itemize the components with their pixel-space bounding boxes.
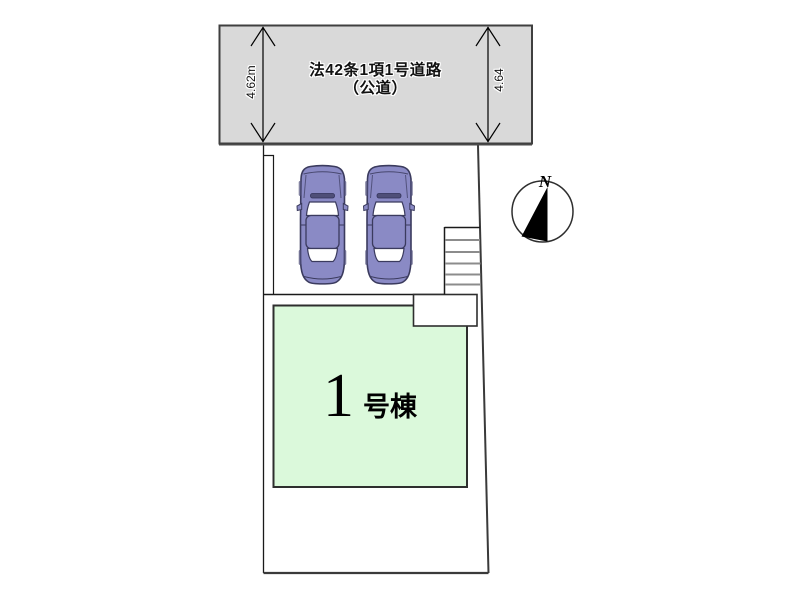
road-width-dimension-right: 4.64 (492, 60, 506, 100)
site-plan: 法42条1項1号道路 （公道） 4.62m 4.64 1 号棟 N (0, 0, 800, 600)
building-number-suffix: 号棟 (363, 385, 417, 424)
compass-north-label: N (535, 172, 555, 192)
car-icon (364, 166, 415, 284)
road-width-dimension-left: 4.62m (244, 54, 258, 110)
setback-step-line (264, 156, 274, 295)
road-label: 法42条1項1号道路 （公道） (219, 62, 532, 98)
building-label-row: 1 号棟 (323, 363, 417, 430)
car-icon (297, 166, 348, 284)
parking-area-divider (264, 156, 445, 295)
car-body (364, 166, 415, 284)
car-body (297, 166, 348, 284)
road-label-line2: （公道） (219, 80, 532, 98)
boundary-line-east (478, 146, 489, 574)
building-label: 1 号棟 (273, 305, 467, 487)
stairs-icon (445, 227, 482, 295)
road-label-line1: 法42条1項1号道路 (219, 62, 532, 80)
building-number: 1 (323, 363, 354, 430)
